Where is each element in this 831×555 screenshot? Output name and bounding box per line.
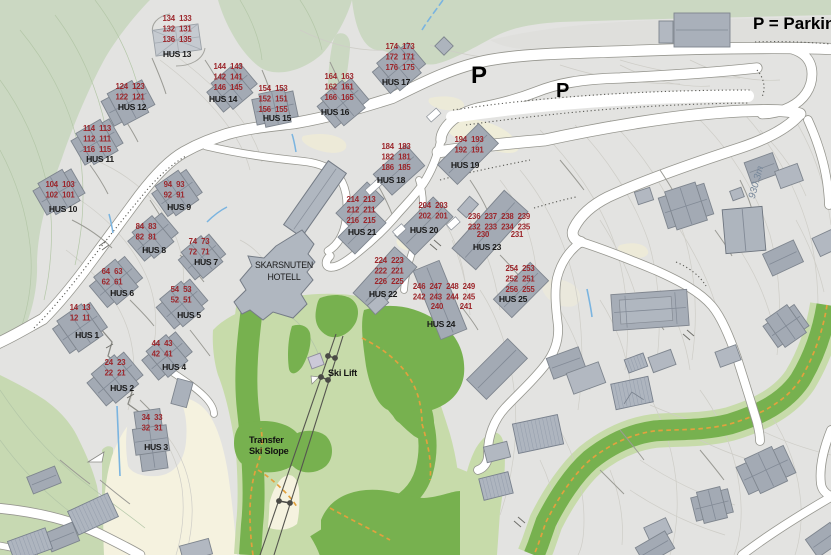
svg-text:HUS 11: HUS 11 — [86, 154, 114, 164]
svg-text:230: 230 — [477, 230, 490, 239]
svg-text:P: P — [471, 62, 487, 89]
svg-text:HUS 23: HUS 23 — [473, 242, 502, 252]
svg-text:HUS 10: HUS 10 — [49, 204, 78, 214]
svg-text:34 33: 34 33 — [142, 413, 164, 422]
svg-text:12 11: 12 11 — [70, 314, 91, 323]
svg-text:182 181: 182 181 — [382, 153, 412, 162]
svg-text:186 185: 186 185 — [382, 163, 412, 172]
svg-text:54 53: 54 53 — [171, 285, 193, 294]
svg-text:144 143: 144 143 — [214, 62, 244, 71]
svg-text:166 165: 166 165 — [325, 93, 355, 102]
svg-text:52 51: 52 51 — [171, 296, 193, 305]
svg-text:164 163: 164 163 — [325, 72, 355, 81]
svg-text:P = Parking: P = Parking — [753, 14, 831, 33]
svg-text:HUS 21: HUS 21 — [348, 227, 377, 237]
svg-text:HUS 7: HUS 7 — [194, 257, 218, 267]
svg-text:216 215: 216 215 — [347, 216, 377, 225]
svg-text:152 151: 152 151 — [259, 95, 289, 104]
svg-text:240: 240 — [431, 302, 444, 311]
svg-text:154 153: 154 153 — [259, 84, 289, 93]
svg-text:HUS 12: HUS 12 — [118, 102, 147, 112]
svg-text:174 173: 174 173 — [386, 42, 416, 51]
svg-text:112 111: 112 111 — [83, 135, 112, 144]
svg-text:62 61: 62 61 — [102, 278, 124, 287]
svg-text:84 83: 84 83 — [136, 222, 158, 231]
svg-text:P: P — [556, 80, 569, 102]
svg-text:72 71: 72 71 — [189, 248, 211, 257]
svg-text:114 113: 114 113 — [83, 124, 112, 133]
svg-text:42 41: 42 41 — [152, 350, 174, 359]
svg-text:184 183: 184 183 — [382, 142, 412, 151]
svg-text:134 133: 134 133 — [163, 14, 193, 23]
svg-text:252 251: 252 251 — [506, 275, 536, 284]
svg-text:132 131: 132 131 — [163, 25, 193, 34]
svg-text:92 91: 92 91 — [164, 191, 186, 200]
svg-text:74 73: 74 73 — [189, 237, 211, 246]
svg-text:Transfer: Transfer — [249, 435, 284, 445]
svg-text:HUS 25: HUS 25 — [499, 294, 528, 304]
svg-text:236 237 238 239: 236 237 238 239 — [468, 212, 531, 221]
svg-text:82 81: 82 81 — [136, 233, 158, 242]
svg-text:14 13: 14 13 — [70, 303, 92, 312]
svg-text:SKARSNUTEN: SKARSNUTEN — [255, 260, 313, 270]
svg-text:HOTELL: HOTELL — [267, 272, 300, 282]
svg-text:241: 241 — [460, 302, 473, 311]
svg-text:226 225: 226 225 — [375, 277, 405, 286]
svg-text:222 221: 222 221 — [375, 267, 405, 276]
svg-text:204 203: 204 203 — [419, 201, 449, 210]
svg-text:94 93: 94 93 — [164, 180, 186, 189]
svg-text:44 43: 44 43 — [152, 339, 174, 348]
svg-text:HUS 22: HUS 22 — [369, 289, 398, 299]
svg-text:142 141: 142 141 — [214, 73, 244, 82]
svg-text:124 123: 124 123 — [116, 82, 146, 91]
svg-text:231: 231 — [511, 230, 524, 239]
svg-text:64 63: 64 63 — [102, 267, 124, 276]
svg-text:104 103: 104 103 — [46, 180, 76, 189]
svg-text:224 223: 224 223 — [375, 256, 405, 265]
svg-text:136 135: 136 135 — [163, 35, 193, 44]
svg-text:HUS 17: HUS 17 — [382, 77, 411, 87]
svg-text:HUS 13: HUS 13 — [163, 49, 192, 59]
svg-text:256 255: 256 255 — [506, 285, 536, 294]
svg-text:202 201: 202 201 — [419, 212, 449, 221]
svg-text:HUS 6: HUS 6 — [110, 288, 134, 298]
svg-text:116 115: 116 115 — [83, 145, 112, 154]
svg-text:HUS 18: HUS 18 — [377, 175, 406, 185]
svg-text:246 247 248 249: 246 247 248 249 — [413, 282, 476, 291]
svg-text:32 31: 32 31 — [142, 424, 164, 433]
svg-text:HUS 8: HUS 8 — [142, 245, 166, 255]
svg-text:146 145: 146 145 — [214, 83, 244, 92]
svg-text:HUS 1: HUS 1 — [75, 330, 99, 340]
svg-text:HUS 24: HUS 24 — [427, 319, 456, 329]
svg-text:176 175: 176 175 — [386, 63, 416, 72]
svg-text:HUS 3: HUS 3 — [144, 442, 168, 452]
svg-text:HUS 9: HUS 9 — [167, 202, 191, 212]
svg-text:Ski Slope: Ski Slope — [249, 446, 289, 456]
svg-text:HUS 19: HUS 19 — [451, 160, 480, 170]
svg-text:HUS 2: HUS 2 — [110, 383, 134, 393]
svg-text:192 191: 192 191 — [455, 146, 485, 155]
svg-text:212 211: 212 211 — [347, 206, 376, 215]
svg-text:254 253: 254 253 — [506, 264, 536, 273]
svg-text:242 243 244 245: 242 243 244 245 — [413, 293, 476, 302]
svg-text:122 121: 122 121 — [116, 93, 146, 102]
svg-text:Ski Lift: Ski Lift — [328, 368, 357, 378]
svg-text:214 213: 214 213 — [347, 195, 377, 204]
svg-text:24 23: 24 23 — [105, 358, 127, 367]
svg-text:HUS 14: HUS 14 — [209, 94, 238, 104]
svg-text:172 171: 172 171 — [386, 53, 416, 62]
svg-text:HUS 15: HUS 15 — [263, 113, 292, 123]
svg-text:HUS 4: HUS 4 — [162, 362, 186, 372]
svg-text:102 101: 102 101 — [46, 191, 76, 200]
svg-text:162 161: 162 161 — [325, 83, 355, 92]
svg-text:HUS 16: HUS 16 — [321, 107, 350, 117]
svg-text:194 193: 194 193 — [455, 135, 485, 144]
svg-text:22 21: 22 21 — [105, 369, 127, 378]
svg-text:HUS 5: HUS 5 — [177, 310, 201, 320]
svg-text:HUS 20: HUS 20 — [410, 225, 439, 235]
